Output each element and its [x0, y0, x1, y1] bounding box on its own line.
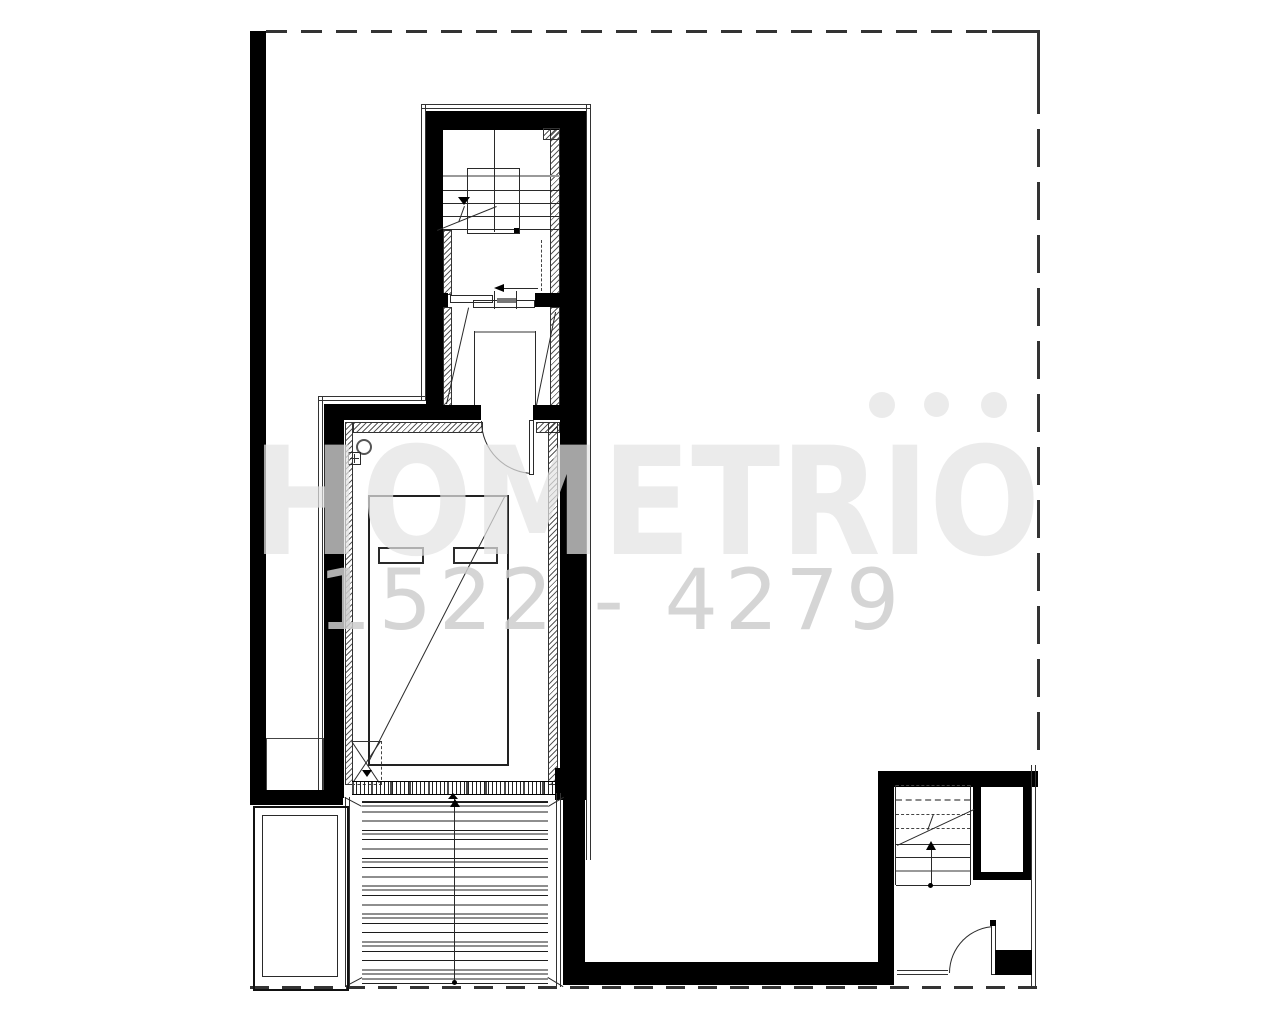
stair-hall-wall-right — [560, 111, 586, 800]
bed-pillow-left — [378, 547, 424, 564]
door-swing-dashed-line — [541, 240, 542, 291]
entry-door-hinge — [990, 920, 996, 926]
stair-center-line — [494, 130, 495, 232]
entry-tread — [896, 885, 970, 886]
boundary-top-dashed-line — [266, 30, 992, 33]
boundary-bottom-dashed-line — [250, 986, 1038, 989]
umlaut-dot-o1 — [924, 392, 949, 417]
vestibule-lining-right — [550, 307, 560, 407]
slide-direction-arrow — [494, 284, 504, 292]
stair-hall-lining-corner — [543, 128, 560, 140]
bed — [368, 495, 509, 766]
deck-line-arrow — [450, 799, 460, 807]
bedroom-frame-top — [318, 396, 426, 401]
entry-door-arc — [949, 926, 996, 973]
floor-plan-canvas: HOMETRIO 1522 - 4279 — [0, 0, 1280, 1024]
vestibule-wall-bottom-left — [426, 405, 481, 420]
stair-down-arrow — [458, 197, 470, 205]
deck-edge-right — [556, 793, 561, 987]
entry-tread-gray — [896, 870, 970, 872]
entry-room-sill — [897, 970, 948, 975]
entry-stair-start-dot — [928, 883, 933, 888]
boundary-right-dashed-line — [1037, 76, 1040, 765]
watermark: HOMETRIO 1522 - 4279 — [0, 0, 1280, 1024]
umlaut-dot-i — [869, 392, 895, 418]
deck-center-line — [454, 799, 455, 983]
entry-stair-arrow-line — [931, 846, 932, 886]
planter-inner — [262, 815, 338, 977]
middle-wall-left-stub — [426, 293, 448, 307]
stair-newel-dot — [514, 228, 519, 233]
bedroom-lining-top — [353, 422, 483, 433]
boundary-right-corner — [1037, 30, 1040, 76]
sliding-door-jamb-tick — [494, 291, 495, 309]
left-boundary-wall — [250, 31, 266, 798]
bedroom-wall-left — [324, 404, 344, 798]
deck-line-dot — [452, 980, 457, 985]
entry-room-wall-left — [878, 771, 894, 985]
vestibule-wall-bottom-right — [533, 405, 560, 420]
vestibule-step-line — [474, 331, 535, 333]
shaft-arrow — [362, 770, 372, 777]
deck-boards — [362, 801, 548, 984]
right-wall-lower — [563, 800, 585, 965]
bedroom-door-leaf — [529, 420, 534, 475]
entry-tread-dashed-gray — [896, 799, 970, 801]
entry-room-wall-bottom-right — [995, 950, 1032, 975]
entry-stair-up-arrow — [926, 841, 936, 850]
closet — [973, 783, 1031, 880]
electric-outlet-symbol — [348, 452, 361, 465]
entry-tread-dashed — [896, 785, 970, 786]
sliding-door-leaf — [497, 298, 517, 303]
umlaut-dot-o2 — [981, 392, 1007, 418]
entry-tread — [896, 857, 970, 858]
bottom-wall-run — [563, 962, 893, 985]
slide-direction-line — [503, 288, 538, 289]
stair-hall-frame-top — [421, 104, 591, 109]
bedroom-lining-right — [548, 422, 558, 785]
stair-hall-wall-left — [426, 111, 443, 420]
bedroom-frame-left — [318, 396, 323, 790]
bedroom-door-arc — [481, 421, 534, 474]
stair-hall-lining-right — [550, 128, 560, 295]
wall-niche — [266, 738, 324, 793]
stair-hall-frame-right — [586, 104, 591, 860]
vestibule-line-right — [535, 331, 536, 405]
boundary-top-right-solid — [992, 30, 1040, 33]
stair-hall-lining-left — [443, 230, 452, 295]
middle-wall-right-stub — [535, 293, 560, 307]
vestibule-lining-left — [443, 307, 452, 407]
bedroom-lining-left — [345, 422, 353, 785]
sliding-door-jamb-tick — [516, 291, 517, 309]
entry-stair-edge-right — [970, 785, 971, 885]
